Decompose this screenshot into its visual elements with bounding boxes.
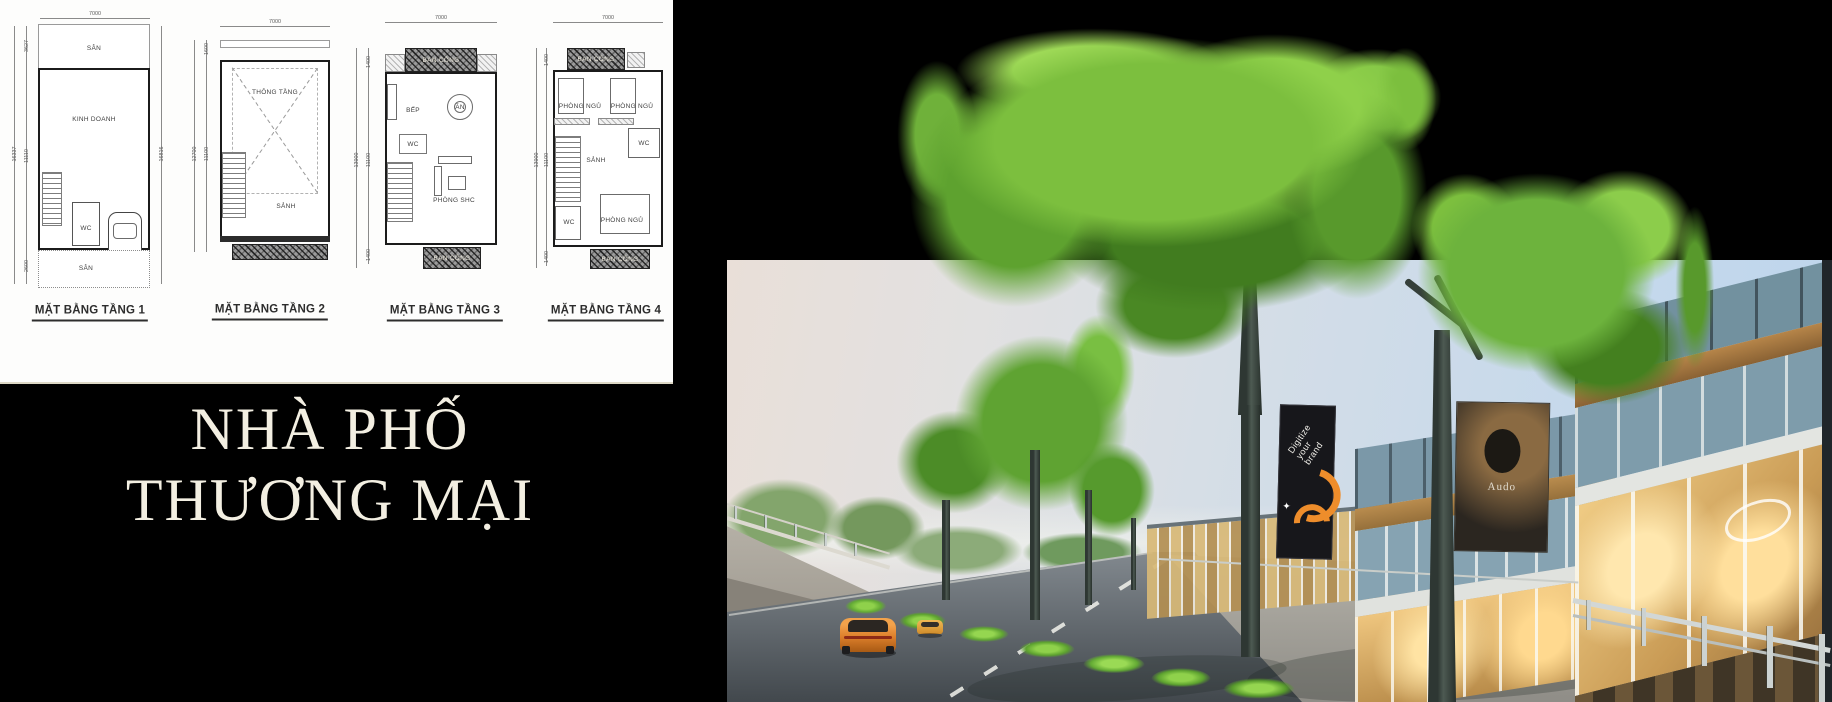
bush <box>1083 654 1145 678</box>
floorplan-tang-4: 7000 13900 1400 11100 1400 BAN CÔNG PHÒN… <box>534 8 676 292</box>
balcony-side <box>385 54 405 72</box>
canopy-blob <box>1290 35 1460 160</box>
fence-post <box>1819 634 1825 702</box>
room-label-san-bottom: SÂN <box>79 264 93 271</box>
poster-brand-text: Audo <box>1470 480 1534 493</box>
room-label-balcony-bottom: BAN CÔNG <box>602 255 639 262</box>
title-line-2: THƯƠNG MẠI <box>80 465 580 536</box>
sofa <box>438 156 472 164</box>
dimension-seg: 11100 <box>365 153 371 167</box>
dimension-seg: 1400 <box>365 56 371 68</box>
bed <box>600 194 650 234</box>
ad-banner: Digitize your brand ✦ <box>1276 404 1336 559</box>
balcony-side <box>477 54 497 72</box>
balcony-hatch <box>232 244 328 260</box>
dimension-seg: 11110 <box>23 149 29 163</box>
floorplan-tang-3: 7000 13900 1400 11100 1400 BAN CÔNG BẾP … <box>350 8 512 292</box>
dimension-total-left: 13900 <box>353 152 359 167</box>
room-label-balcony-top: BAN CÔNG <box>423 56 460 63</box>
car-windshield <box>113 223 137 239</box>
fence-post <box>1587 600 1591 630</box>
room-label-sanh: SẢNH <box>276 202 295 209</box>
dimension-line <box>553 22 663 23</box>
room-label-bep: BẾP <box>406 106 420 113</box>
street-tree-trunk <box>1085 490 1092 605</box>
room-label-ngu-3: PHÒNG NGỦ <box>601 216 644 223</box>
poster-chair-silhouette <box>1484 429 1521 474</box>
room-label-wc: WC <box>407 140 418 147</box>
stairs <box>555 136 581 202</box>
small-car <box>917 616 945 638</box>
dimension-seg: 1400 <box>365 249 371 261</box>
railing-post <box>795 524 797 537</box>
street-tree-trunk <box>1030 450 1040 620</box>
car-tire <box>842 646 850 654</box>
floorplan-tang-1: 7000 16337 3627 11110 2600 16816 SÂN KIN… <box>8 4 180 296</box>
canopy-blob <box>900 120 1030 215</box>
balcony-side <box>627 52 645 68</box>
room-label-thong-tang: THÔNG TẦNG <box>252 88 298 95</box>
car-window <box>921 622 939 627</box>
room-label-ngu-1: PHÒNG NGỦ <box>559 102 602 109</box>
room-label-balcony-bottom: BAN CÔNG <box>434 254 471 261</box>
dimension-line <box>220 26 330 27</box>
floorplan-tang-2: 7000 12700 1600 11100 THÔNG TẦNG SẢNH <box>190 12 344 288</box>
stairs <box>42 172 62 226</box>
ring-light <box>1725 492 1791 548</box>
dimension-line <box>40 18 150 19</box>
street-tree-trunk <box>1131 518 1136 590</box>
wardrobe <box>554 118 590 125</box>
car-tire <box>886 646 894 654</box>
dimension-seg: 2600 <box>23 260 29 272</box>
floorplan-caption-3: MẶT BẰNG TẦNG 3 <box>387 305 503 322</box>
starburst-icon: ✦ <box>1282 501 1291 512</box>
room-label-balcony-top: BAN CÔNG <box>578 55 615 62</box>
tree-branch <box>1277 112 1362 174</box>
coffee-table <box>448 176 466 190</box>
dimension-width: 7000 <box>89 10 101 16</box>
railing-post <box>765 515 767 528</box>
fence-post <box>1767 626 1773 688</box>
dimension-total-left: 12700 <box>191 146 197 161</box>
room-label-wc-2: WC <box>563 218 574 225</box>
car-rear-window <box>848 620 888 632</box>
bush <box>959 626 1009 646</box>
dimension-total-left: 13900 <box>533 152 539 167</box>
railing-post <box>855 543 857 556</box>
floor-edge <box>220 236 330 242</box>
railing-post <box>735 506 737 519</box>
bush <box>1019 640 1075 662</box>
room-label-sanh: SẢNH <box>586 156 605 163</box>
car-taillight-bar <box>844 636 892 639</box>
project-title: NHÀ PHỐ THƯƠNG MẠI <box>80 394 580 536</box>
dimension-seg: 1400 <box>543 54 549 66</box>
dimension-seg: 11100 <box>543 153 549 167</box>
dimension-seg: 11100 <box>203 147 209 161</box>
dimension-seg: 1600 <box>203 43 209 55</box>
orange-sports-car <box>840 612 898 658</box>
stairs <box>387 162 413 222</box>
dimension-width: 7000 <box>269 18 281 24</box>
dimension-seg: 3627 <box>23 40 29 52</box>
tree-branch <box>1132 114 1218 192</box>
room-label-ngu-2: PHÒNG NGỦ <box>611 102 654 109</box>
room-label-an: ĂN <box>455 103 465 110</box>
street-tree-canopy <box>1057 430 1167 550</box>
floorplan-caption-1: MẶT BẰNG TẦNG 1 <box>32 305 148 322</box>
bush <box>1151 668 1211 692</box>
shop-poster: Audo <box>1454 401 1551 553</box>
kitchen-counter <box>387 84 397 120</box>
title-line-1: NHÀ PHỐ <box>80 394 580 465</box>
sofa-side <box>434 166 442 196</box>
dimension-width: 7000 <box>435 14 447 20</box>
wardrobe <box>598 118 634 125</box>
floorplans-panel: 7000 16337 3627 11110 2600 16816 SÂN KIN… <box>0 0 673 384</box>
dimension-width: 7000 <box>602 14 614 20</box>
dimension-line <box>385 22 497 23</box>
dimension-seg: 1400 <box>543 251 549 263</box>
tree-branch <box>1164 183 1251 234</box>
dimension-total-left: 16337 <box>11 146 17 161</box>
tree-branch <box>1234 151 1272 263</box>
floorplan-caption-4: MẶT BẰNG TẦNG 4 <box>548 305 664 322</box>
railing-post <box>825 533 827 546</box>
stairs <box>222 152 246 218</box>
fence-post <box>1642 608 1646 646</box>
floorplan-caption-2: MẶT BẰNG TẦNG 2 <box>212 304 328 321</box>
ad-banner-text: Digitize your brand <box>1286 416 1333 466</box>
bush <box>1223 678 1295 702</box>
brochure-canvas: 7000 16337 3627 11110 2600 16816 SÂN KIN… <box>0 0 1832 702</box>
room-label-wc-1: WC <box>638 139 649 146</box>
fence-post <box>1702 616 1707 666</box>
roof-overhang <box>220 40 330 48</box>
room-label-san-top: SÂN <box>87 44 101 51</box>
yard-back <box>38 250 150 288</box>
room-label-shc: PHÒNG SHC <box>433 196 475 203</box>
room-label-wc: WC <box>80 224 91 231</box>
car-shadow <box>918 633 942 638</box>
dimension-right: 16816 <box>158 146 164 161</box>
street-render-photo: Digitize your brand ✦ Audo <box>727 260 1832 702</box>
room-label-kinh-doanh: KINH DOANH <box>72 115 116 122</box>
street-tree-trunk <box>942 500 950 600</box>
